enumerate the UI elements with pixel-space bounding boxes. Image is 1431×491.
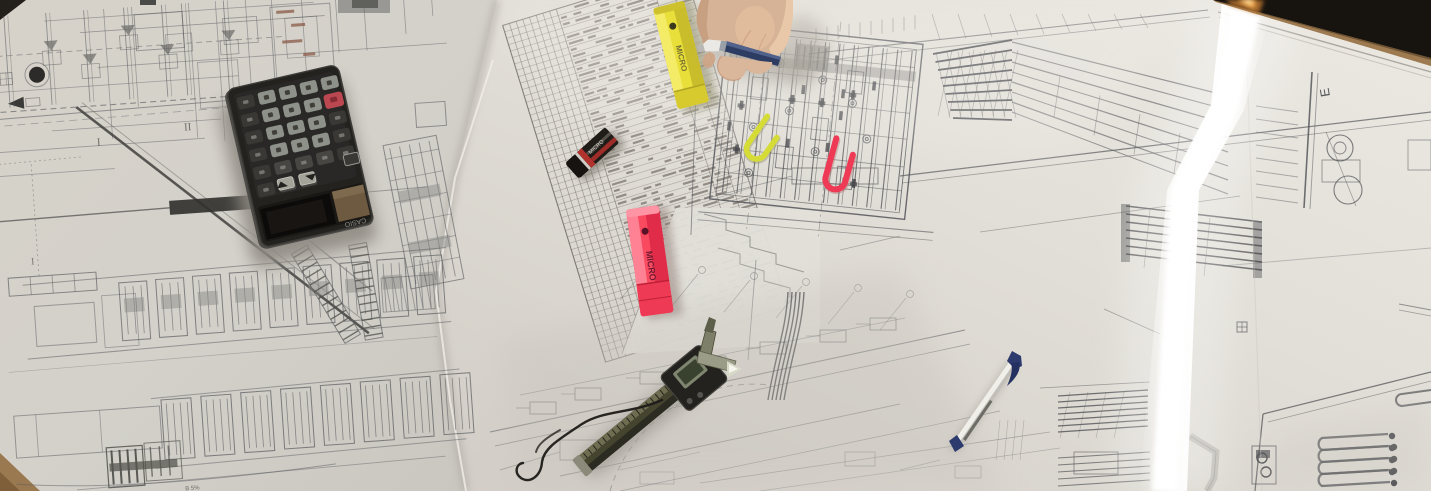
svg-text:B 5%: B 5% xyxy=(185,485,200,491)
svg-text:II: II xyxy=(184,121,192,134)
